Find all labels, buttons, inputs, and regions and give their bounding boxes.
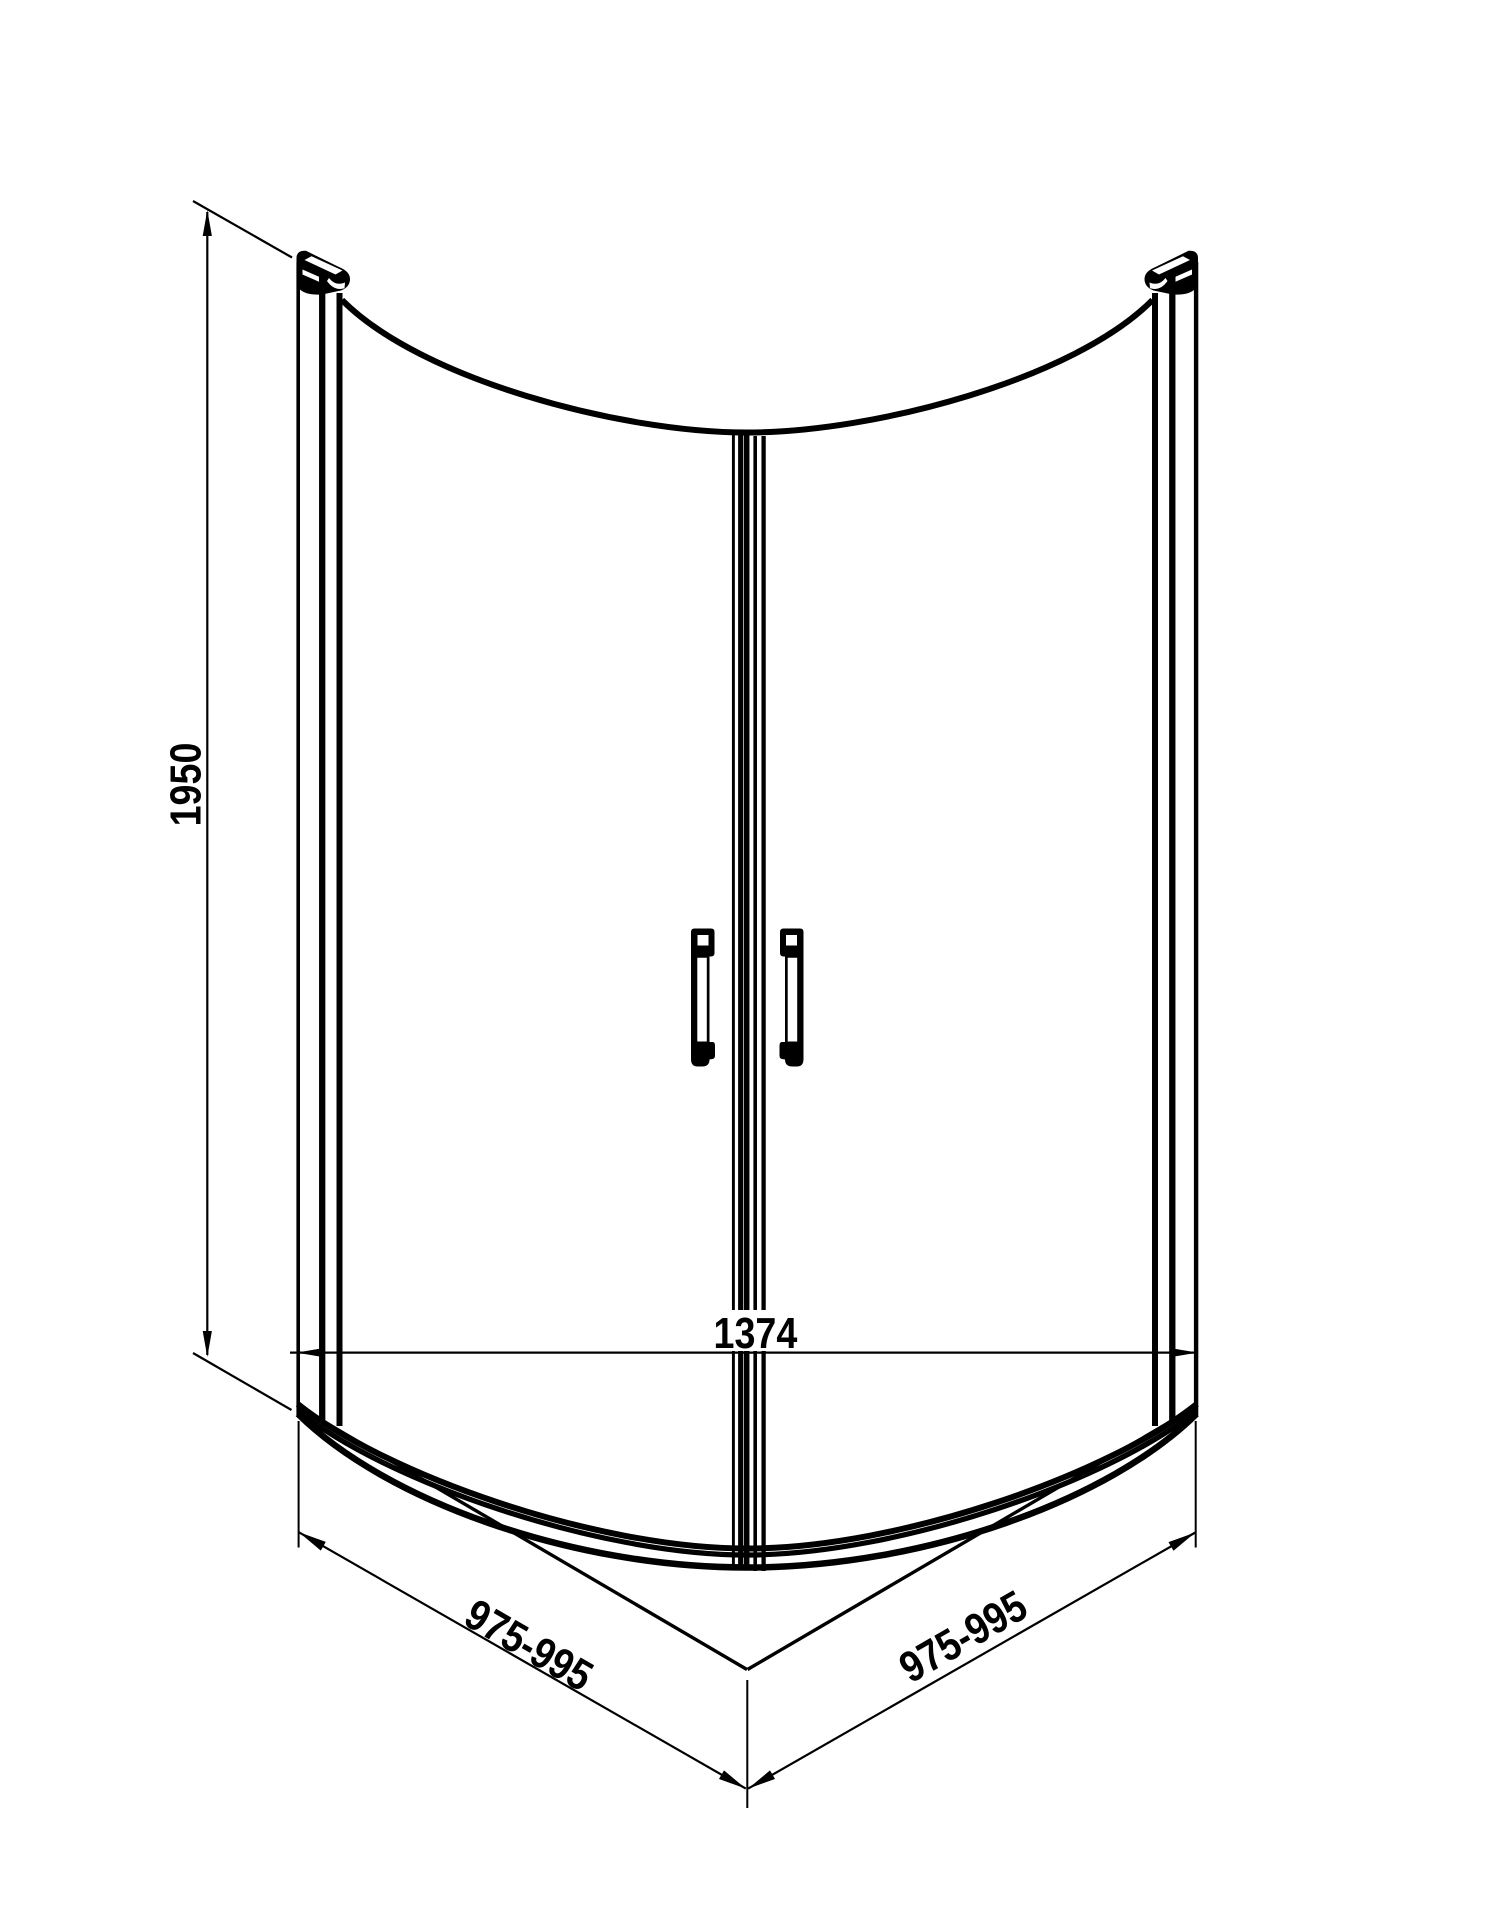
svg-text:1374: 1374 bbox=[714, 1308, 798, 1357]
svg-text:1950: 1950 bbox=[161, 743, 210, 827]
